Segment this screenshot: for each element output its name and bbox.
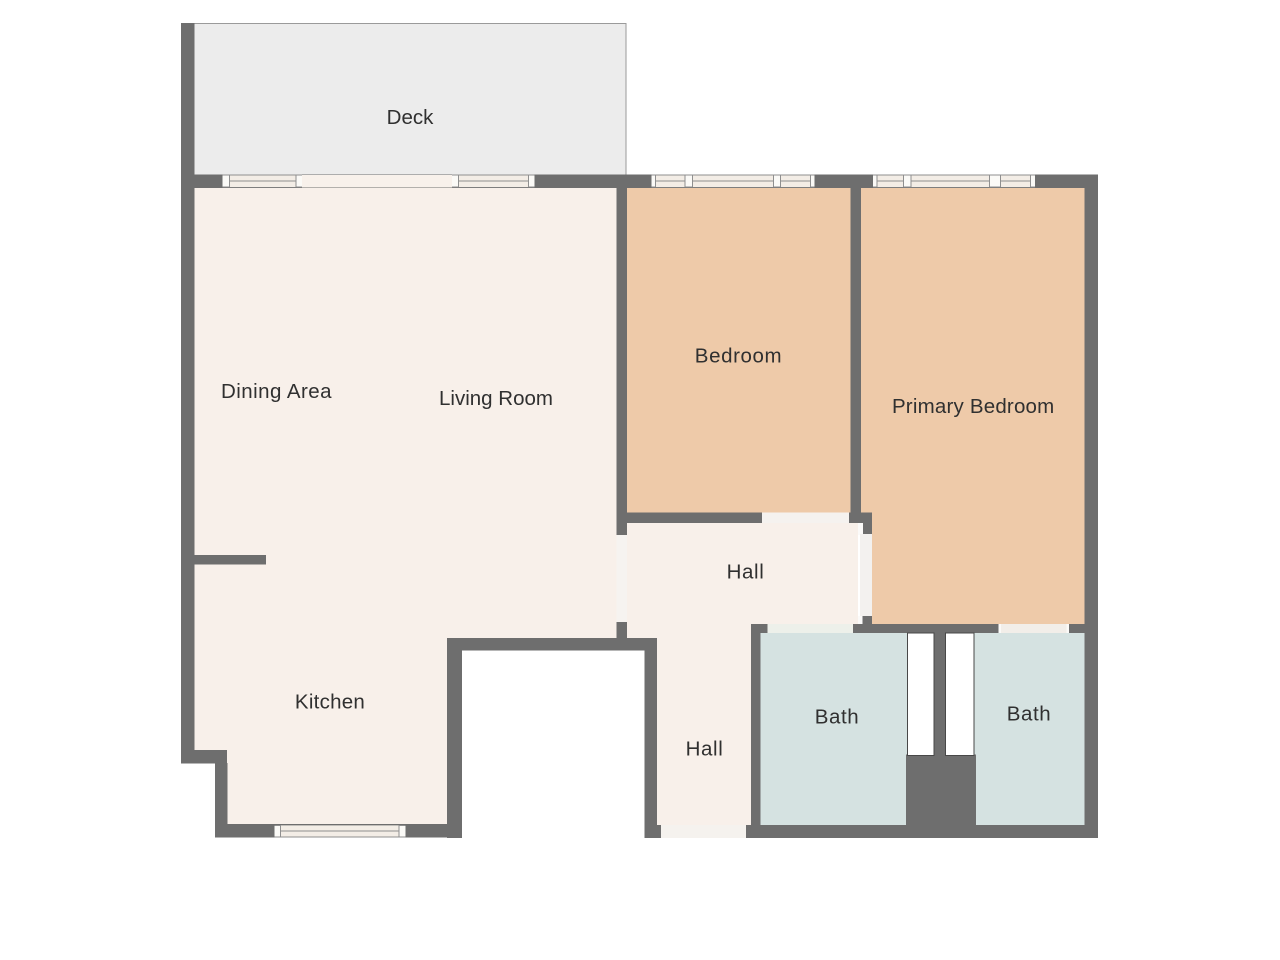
svg-text:Dining Area: Dining Area (221, 380, 332, 403)
svg-text:Deck: Deck (387, 106, 434, 129)
svg-text:Bath: Bath (1007, 703, 1052, 726)
svg-text:Primary Bedroom: Primary Bedroom (892, 395, 1055, 418)
svg-text:Kitchen: Kitchen (295, 691, 365, 714)
svg-text:Bedroom: Bedroom (695, 345, 782, 368)
svg-text:Living Room: Living Room (439, 387, 553, 410)
svg-text:Hall: Hall (686, 738, 724, 761)
svg-text:Hall: Hall (727, 561, 765, 584)
svg-text:Bath: Bath (815, 706, 860, 729)
